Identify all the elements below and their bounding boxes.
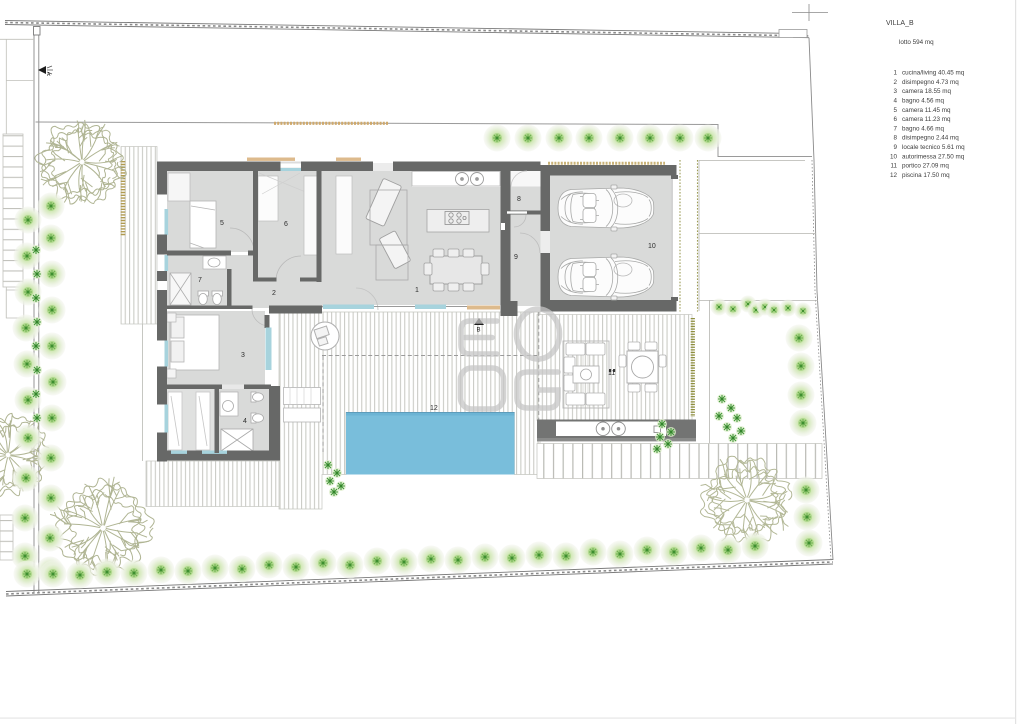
svg-text:12: 12 (890, 172, 898, 179)
svg-text:6: 6 (893, 116, 897, 123)
svg-text:disimpegno 4.73 mq: disimpegno 4.73 mq (902, 79, 959, 86)
svg-text:11: 11 (890, 163, 897, 170)
svg-text:B: B (477, 328, 481, 334)
svg-text:1: 1 (893, 70, 897, 77)
svg-text:7: 7 (198, 277, 202, 284)
svg-text:cucina/living 40.45 mq: cucina/living 40.45 mq (902, 70, 965, 77)
svg-text:9: 9 (893, 144, 897, 151)
svg-text:10: 10 (890, 153, 898, 160)
svg-text:10: 10 (648, 243, 656, 250)
svg-text:12: 12 (430, 405, 438, 412)
svg-text:3: 3 (893, 88, 897, 95)
svg-text:3: 3 (241, 352, 245, 359)
svg-text:VILLA_B: VILLA_B (886, 20, 914, 27)
svg-text:portico 27.09 mq: portico 27.09 mq (902, 163, 949, 170)
svg-text:6: 6 (284, 221, 288, 228)
svg-text:2: 2 (893, 79, 897, 86)
svg-text:2: 2 (272, 290, 276, 297)
svg-text:piscina 17.50 mq: piscina 17.50 mq (902, 172, 950, 179)
svg-text:11: 11 (608, 370, 615, 377)
svg-text:4: 4 (243, 418, 247, 425)
svg-text:4: 4 (893, 98, 897, 105)
svg-text:5: 5 (220, 220, 224, 227)
svg-text:5: 5 (893, 107, 897, 114)
svg-text:bagno 4.56 mq: bagno 4.56 mq (902, 98, 945, 105)
svg-text:autorimessa 27.50 mq: autorimessa 27.50 mq (902, 153, 965, 160)
svg-text:8: 8 (517, 196, 521, 203)
svg-text:8: 8 (893, 135, 897, 142)
svg-text:camera 18.55 mq: camera 18.55 mq (902, 88, 951, 95)
svg-text:camera 11.23 mq: camera 11.23 mq (902, 116, 951, 123)
svg-text:7: 7 (893, 125, 897, 132)
svg-text:camera 11.45 mq: camera 11.45 mq (902, 107, 951, 114)
svg-text:bagno 4.66 mq: bagno 4.66 mq (902, 125, 945, 132)
svg-text:9: 9 (514, 254, 518, 261)
svg-text:disimpegno 2.44 mq: disimpegno 2.44 mq (902, 135, 959, 142)
svg-text:1: 1 (415, 287, 419, 294)
svg-text:locale tecnico 5.61 mq: locale tecnico 5.61 mq (902, 144, 965, 151)
svg-text:lotto 594 mq: lotto 594 mq (899, 39, 934, 46)
